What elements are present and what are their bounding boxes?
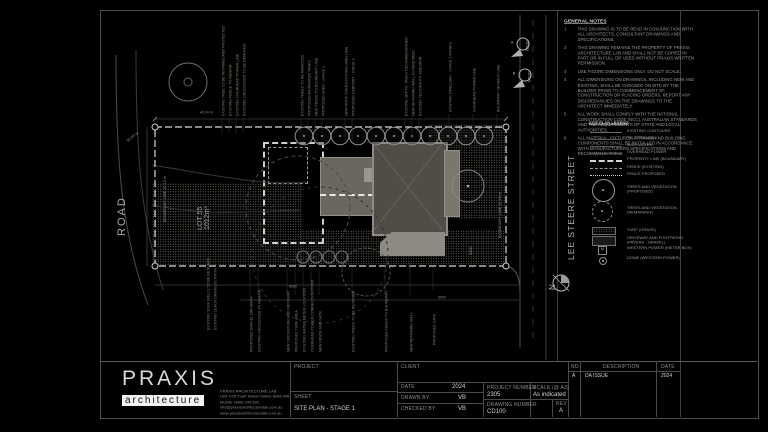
drawing-sheet: GENERAL NOTES 1THIS DRAWING IS TO BE REA… [0, 0, 768, 432]
street-name-lee-steere: LEE STEERE STREET [566, 155, 576, 260]
scale-label: SCALE (@ A3) [533, 385, 569, 391]
revision-row-no: A [572, 373, 575, 379]
sheet-label: SHEET [294, 394, 312, 400]
elevation-marker-b-letter: B [513, 72, 515, 76]
project-label: PROJECT [294, 364, 319, 370]
plan-annotation: PROPOSED FENCE TO BOUNDARY [385, 291, 389, 352]
plan-annotation: NEW FENCE AND GATE [319, 311, 323, 352]
revision-row-date: 2024 [661, 373, 672, 379]
plan-annotation: PROPOSED GATE [433, 314, 437, 345]
plan-annotation: EXISTING CROSSOVER TO REMAIN [258, 290, 262, 352]
logo-sub: architecture [122, 395, 204, 406]
plan-annotation: EXISTING DWELLING - STAGE 1 WORKS [449, 42, 453, 112]
revision-divider [580, 361, 581, 417]
lot-number: LOT 55 [197, 206, 204, 230]
drawing-number-label: DRAWING NUMBER [487, 402, 537, 408]
rev-value: A [559, 408, 563, 414]
rev-label: REV [556, 401, 567, 407]
drawn-by-value: VB [458, 395, 466, 401]
drawn-by-label: DRAWN BY [401, 395, 429, 401]
plan-annotation: PROPOSED RAINWATER TANKS [308, 60, 312, 116]
plan-annotation: EXISTING OVERHEAD POWER LINE [236, 54, 240, 116]
scale-value: As indicated [533, 392, 566, 398]
logo-brand: PRAXIS [122, 367, 217, 390]
project-number-label: PROJECT NUMBER [487, 385, 536, 391]
north-letter: N [548, 284, 557, 290]
plan-annotation: PROPOSED CARPORT - STAGE 2 [352, 58, 356, 116]
plan-annotation: NEW CROSSOVER AND DRIVEWAY [287, 291, 291, 352]
titleblock-divider [397, 382, 568, 383]
revision-no-header: NO [571, 364, 579, 370]
project-number-value: 2305 [487, 392, 500, 398]
plan-annotation: PROPOSED GRAVEL DRIVEWAY [250, 296, 254, 352]
titleblock-divider [397, 403, 483, 404]
plan-annotation: EXISTING SOAK WELLS TO BE RETAINED [207, 258, 211, 330]
plan-annotation: PROPOSED TURF AREA [295, 310, 299, 352]
titleblock-top-line [100, 361, 757, 362]
revision-divider [656, 361, 657, 417]
checked-by-label: CHECKED BY [401, 406, 436, 412]
date-label: DATE [401, 384, 415, 390]
elevation-marker-b-tag: CD101 [528, 71, 532, 82]
titleblock-divider [397, 361, 398, 417]
plan-annotation: OVERHEAD POWER CONNECTION POINT [311, 279, 315, 352]
titleblock-divider [483, 399, 568, 400]
logo-contact: PRAXIS ARCHITECTURE LAB Unit 1/25 Tuart … [220, 389, 290, 416]
plan-annotation: EXISTING SEPTIC TANKS DECOMMISSIONED [405, 37, 409, 116]
contact-line: www.praxisarchitecturelab.com.au [220, 411, 290, 416]
dimension-6090: 6090 [289, 285, 297, 289]
drawing-number-value: CD100 [487, 409, 506, 415]
titleblock-divider [552, 399, 553, 417]
plan-annotation: NEW RETAINING WALL AS REQUIRED [412, 50, 416, 116]
lot-label: LOT 55 1012m² [197, 206, 211, 230]
plan-annotation: EXISTING LEACH DRAIN LOCATION [214, 268, 218, 330]
plan-annotation: EXISTING TREES TO BE REMOVED [301, 55, 305, 116]
plan-annotation: EXISTING FENCE TO REMAIN [229, 65, 233, 116]
titleblock-divider [290, 391, 397, 392]
revision-date-header: DATE [661, 364, 675, 370]
revision-description-header: DESCRIPTION [603, 364, 639, 370]
plan-annotation: EXISTING TREE TO BE RETAINED AND PROTECT… [222, 25, 226, 116]
revision-row-description: DA ISSUE [585, 373, 608, 379]
titleblock-divider [397, 392, 483, 393]
plan-annotation: NEW FENCE TO BOUNDARY LINE [315, 58, 319, 116]
plan-annotation: PROPOSED SHED - STAGE 2 [322, 66, 326, 116]
boundary-left-label: BOUNDARY LINE 20.12 m [163, 176, 167, 222]
plan-annotation: BOUNDARY SETBACK LINE [497, 64, 501, 112]
boundary-right-label: BOUNDARY LINE 50.29 m [498, 192, 502, 238]
client-label: CLIENT [401, 364, 420, 370]
boundary-top-dimension: 40.24 m [200, 111, 213, 115]
plan-annotation: NEW RETAINING WALL [410, 312, 414, 352]
revision-header-line [568, 371, 680, 372]
plan-annotation: EXISTING WATER METER LOCATION [303, 288, 307, 352]
date-value: 2024 [452, 384, 465, 390]
elevation-marker-a-tag: CD101 [526, 40, 530, 51]
dimension-6000: 6000 [469, 246, 473, 255]
dimension-3000: 3000 [438, 296, 446, 300]
titleblock-divider [290, 361, 291, 417]
plan-annotation: EXISTING CROSSOVER TO BE REMOVED [243, 44, 247, 116]
lot-area: 1012m² [204, 206, 211, 230]
elevation-marker-a-letter: A [511, 41, 513, 45]
plan-annotation: OVERHEAD POWER LINE [473, 68, 477, 112]
checked-by-value: VB [458, 406, 466, 412]
praxis-logo: PRAXIS architecture [122, 367, 217, 408]
plan-annotation: EXISTING TELSTRA PIT AND MAIN [419, 57, 423, 116]
plan-annotation: NEW ROOF OVER EXISTING DWELLING [345, 47, 349, 116]
plan-annotation: EXISTING TREES TO BE RETAINED [352, 291, 356, 352]
sheet-title: SITE PLAN - STAGE 1 [294, 406, 355, 412]
road-label: ROAD [116, 196, 128, 236]
